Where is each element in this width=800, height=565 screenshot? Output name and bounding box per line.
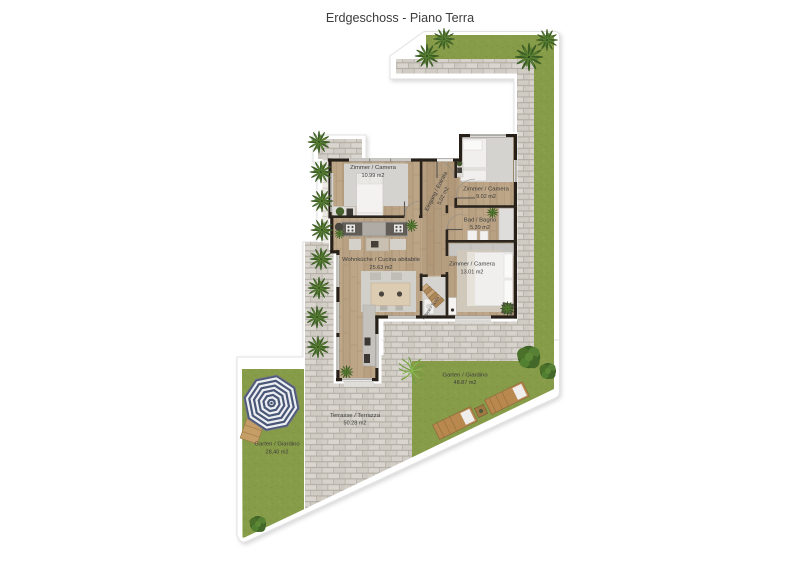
svg-text:5.39 m2: 5.39 m2 (470, 225, 490, 231)
svg-text:10.99 m2: 10.99 m2 (362, 173, 385, 179)
svg-text:Garten / Giardino: Garten / Giardino (442, 373, 488, 379)
svg-text:28,40 m2: 28,40 m2 (266, 450, 289, 456)
svg-text:Terrasse / Terrazza: Terrasse / Terrazza (330, 413, 381, 419)
svg-text:Erdgeschoss - Piano Terra: Erdgeschoss - Piano Terra (326, 11, 474, 25)
svg-text:Bad / Bagno: Bad / Bagno (464, 218, 497, 224)
svg-text:Zimmer / Camera: Zimmer / Camera (463, 187, 510, 193)
svg-text:25.63 m2: 25.63 m2 (370, 265, 393, 271)
svg-text:Garten / Giardino: Garten / Giardino (254, 442, 300, 448)
svg-text:Zimmer / Camera: Zimmer / Camera (350, 165, 397, 171)
svg-text:50.28 m2: 50.28 m2 (344, 421, 367, 427)
svg-text:48.87 m2: 48.87 m2 (454, 380, 477, 386)
svg-text:13.01 m2: 13.01 m2 (461, 270, 484, 276)
svg-text:Zimmer / Camera: Zimmer / Camera (449, 262, 496, 268)
svg-text:9.02 m2: 9.02 m2 (476, 194, 496, 200)
svg-text:Wohnküche / Cucina abitabile: Wohnküche / Cucina abitabile (342, 257, 421, 263)
